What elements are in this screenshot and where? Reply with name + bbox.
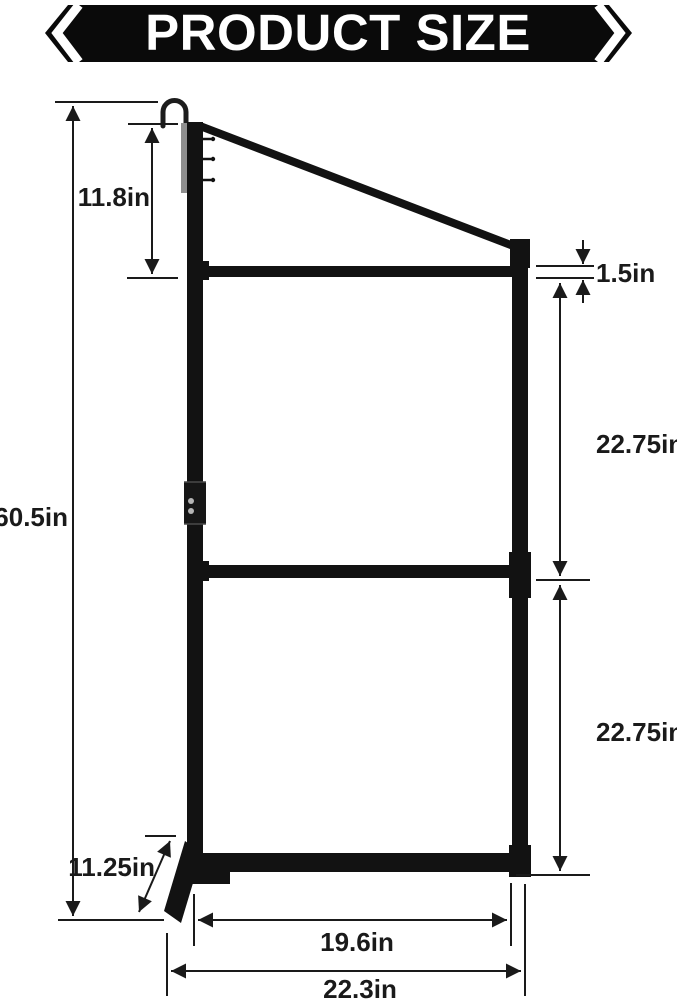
dim-lower-label: 22.75in xyxy=(596,717,677,747)
dim-total-height: 60.5in xyxy=(0,102,164,920)
dim-base-label: 11.25in xyxy=(68,852,155,882)
dim-thickness-label: 1.5in xyxy=(596,258,655,288)
peg-cap-3 xyxy=(211,178,215,182)
hook-mounting-plate xyxy=(181,123,188,193)
right-post-middle-sleeve xyxy=(509,552,531,598)
dim-upper-section: 22.75in xyxy=(536,283,677,580)
pole-screw-bottom xyxy=(188,508,194,514)
middle-bar xyxy=(203,565,512,578)
banner-title: PRODUCT SIZE xyxy=(145,4,531,61)
dim-lower-section: 22.75in xyxy=(516,585,677,875)
wall-pegs xyxy=(203,139,211,180)
dim-base-foot: 11.25in xyxy=(68,836,176,912)
dim-inner-width: 19.6in xyxy=(194,883,511,957)
dim-inner-label: 19.6in xyxy=(320,927,394,957)
bottom-bar-bracket xyxy=(196,869,230,884)
bottom-bar xyxy=(200,853,530,872)
product-size-page: PRODUCT SIZE xyxy=(0,0,677,1000)
pole-screw-top xyxy=(188,498,194,504)
dim-hook-label: 11.8in xyxy=(78,182,150,212)
diagonal-brace xyxy=(200,126,516,247)
dim-total-height-label: 60.5in xyxy=(0,502,68,532)
size-diagram: PRODUCT SIZE xyxy=(0,0,677,1000)
dim-hook-to-top-bar: 11.8in xyxy=(78,124,178,278)
dim-bar-thickness: 1.5in xyxy=(536,240,655,303)
peg-cap-1 xyxy=(211,137,215,141)
rack-frame xyxy=(163,101,531,924)
banner: PRODUCT SIZE xyxy=(45,4,632,62)
peg-cap-2 xyxy=(211,157,215,161)
pole-sleeve xyxy=(184,482,206,524)
dim-overall-label: 22.3in xyxy=(323,974,397,1000)
top-hang-bar-rail xyxy=(203,266,512,277)
dim-upper-label: 22.75in xyxy=(596,429,677,459)
